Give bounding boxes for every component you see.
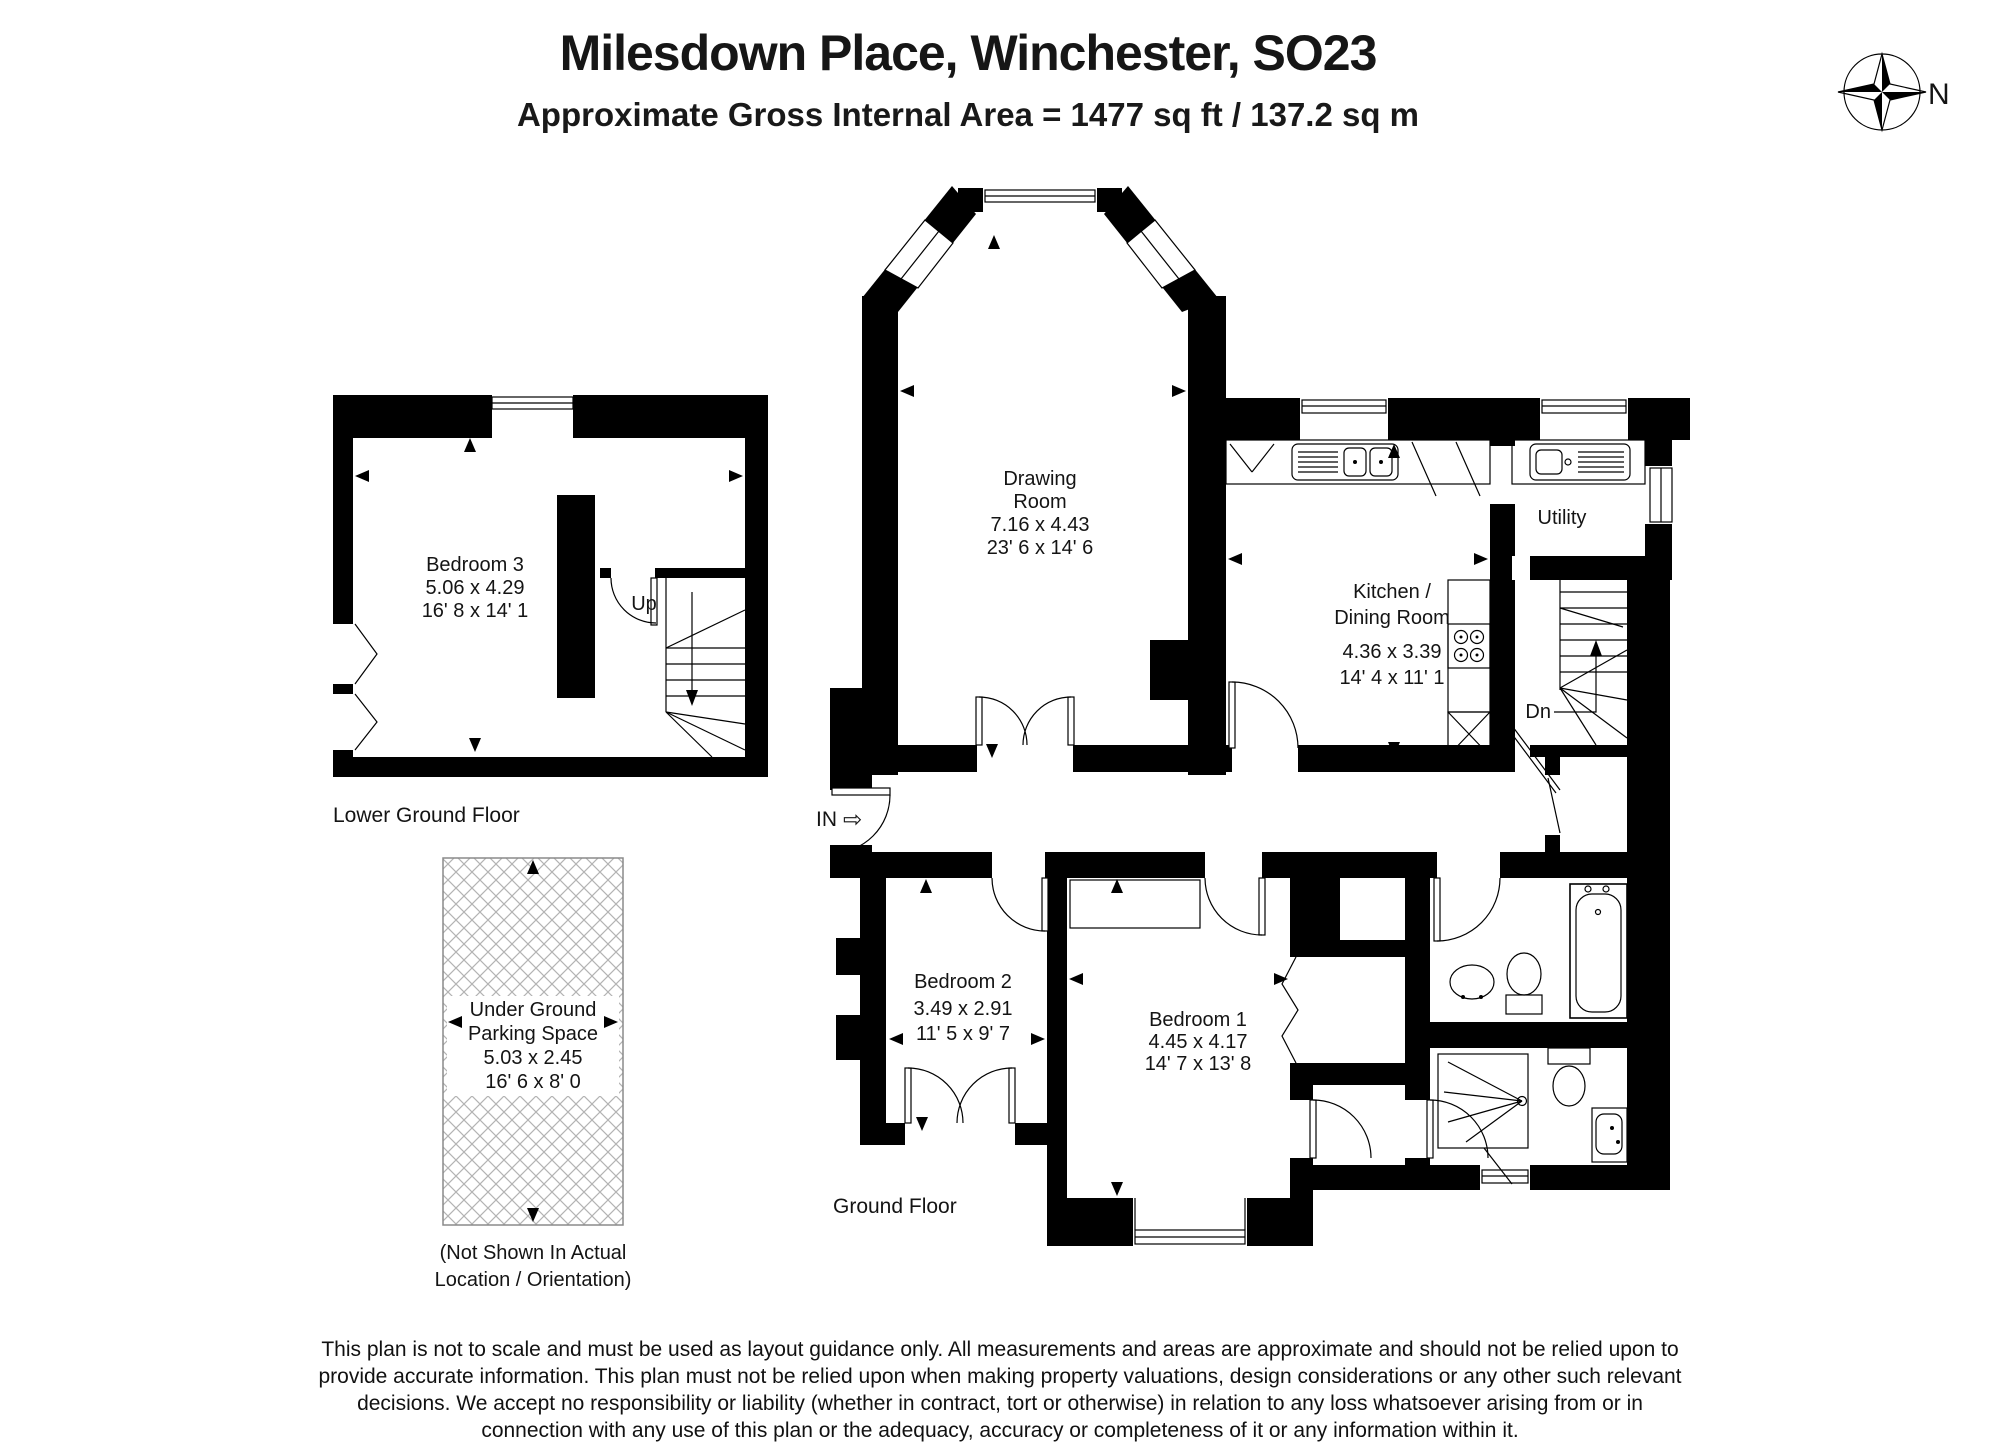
- parking-dim-metric: 5.03 x 2.45: [484, 1047, 583, 1069]
- room-label: Kitchen /: [1353, 581, 1431, 603]
- stairs-up-label: Up: [631, 593, 657, 615]
- toilet-symbol-bathroom: [1506, 953, 1542, 1014]
- lower-ground-floor-label: Lower Ground Floor: [333, 804, 520, 827]
- stairs-down-marker: Dn: [1525, 701, 1551, 723]
- disclaimer: This plan is not to scale and must be us…: [0, 1336, 2000, 1444]
- lower-ground-floor-plan: Bedroom 3 5.06 x 4.29 16' 8 x 14' 1 Up L…: [333, 395, 768, 827]
- room-dim-metric: 5.06 x 4.29: [426, 577, 525, 599]
- page-title: Milesdown Place, Winchester, SO23: [0, 24, 1936, 82]
- wardrobe-bifold-door: [1282, 957, 1298, 1063]
- room-drawing-room: Drawing Room 7.16 x 4.43 23' 6 x 14' 6: [987, 468, 1094, 559]
- disclaimer-line-1: This plan is not to scale and must be us…: [0, 1336, 2000, 1363]
- floorplan-drawing: Bedroom 3 5.06 x 4.29 16' 8 x 14' 1 Up L…: [0, 0, 2000, 1445]
- parking-note-1: (Not Shown In Actual: [440, 1242, 627, 1264]
- utility-fixtures: [1512, 440, 1645, 484]
- room-utility-label: Utility: [1538, 507, 1587, 529]
- lower-ground-walls: [333, 395, 768, 777]
- room-dim-imperial: 16' 8 x 14' 1: [422, 600, 529, 622]
- room-dim-imperial: 14' 7 x 13' 8: [1145, 1053, 1252, 1075]
- room-dim-imperial: 11' 5 x 9' 7: [916, 1023, 1010, 1045]
- room-bedroom3: Bedroom 3 5.06 x 4.29 16' 8 x 14' 1: [422, 554, 529, 622]
- hob-symbol: [1448, 624, 1490, 668]
- ground-floor-windows: [885, 190, 1672, 1244]
- page-subtitle: Approximate Gross Internal Area = 1477 s…: [0, 96, 1936, 134]
- floorplan-page: Bedroom 3 5.06 x 4.29 16' 8 x 14' 1 Up L…: [0, 0, 2000, 1445]
- lower-ground-window: [492, 397, 573, 409]
- room-bedroom2: Bedroom 2 3.49 x 2.91 11' 5 x 9' 7: [914, 971, 1013, 1045]
- parking-label-1: Under Ground: [470, 999, 597, 1021]
- measurement-arrow-icons-lg: [355, 438, 743, 752]
- room-label: Bedroom 1: [1149, 1009, 1247, 1031]
- bathtub-symbol: [1570, 884, 1627, 1018]
- shower-symbol: [1438, 1054, 1528, 1184]
- room-dim-metric: 4.36 x 3.39: [1343, 641, 1442, 663]
- parking-dim-imperial: 16' 6 x 8' 0: [485, 1071, 580, 1093]
- closet-bifold-doors: [355, 624, 377, 750]
- room-dim-metric: 3.49 x 2.91: [914, 998, 1013, 1020]
- room-label-2: Room: [1013, 491, 1066, 513]
- room-label: Drawing: [1003, 468, 1076, 490]
- entrance-arrow-icon: ⇨: [843, 806, 862, 832]
- room-dim-imperial: 14' 4 x 11' 1: [1339, 667, 1444, 689]
- header: Milesdown Place, Winchester, SO23 Approx…: [0, 24, 1936, 134]
- room-dim-metric: 7.16 x 4.43: [991, 514, 1090, 536]
- shower-room-fixtures: [1438, 1048, 1627, 1184]
- ground-floor-label: Ground Floor: [833, 1195, 957, 1218]
- parking-note-2: Location / Orientation): [435, 1269, 632, 1291]
- stairs-down-label: Dn: [1525, 701, 1551, 723]
- entrance-label: IN: [816, 808, 837, 831]
- disclaimer-line-4: connection with any use of this plan or …: [0, 1417, 2000, 1444]
- room-label: Bedroom 2: [914, 971, 1012, 993]
- parking-space: Under Ground Parking Space 5.03 x 2.45 1…: [435, 858, 632, 1291]
- parking-label-2: Parking Space: [468, 1023, 598, 1045]
- room-dim-metric: 4.45 x 4.17: [1149, 1031, 1248, 1053]
- room-dim-imperial: 23' 6 x 14' 6: [987, 537, 1094, 559]
- room-label-2: Dining Room: [1334, 607, 1450, 629]
- utility-sink-symbol: [1530, 444, 1630, 480]
- ground-floor-stairs: [1554, 580, 1627, 745]
- ground-floor-plan: Drawing Room 7.16 x 4.43 23' 6 x 14' 6 K…: [816, 186, 1690, 1246]
- ground-floor-walls: [830, 186, 1690, 1246]
- room-bedroom1: Bedroom 1 4.45 x 4.17 14' 7 x 13' 8: [1145, 1009, 1252, 1075]
- disclaimer-line-2: provide accurate information. This plan …: [0, 1363, 2000, 1390]
- basin-symbol-shower-room: [1592, 1108, 1627, 1162]
- toilet-symbol-shower-room: [1548, 1048, 1590, 1106]
- bathroom-fixtures: [1450, 884, 1627, 1018]
- room-kitchen-dining: Kitchen / Dining Room 4.36 x 3.39 14' 4 …: [1334, 581, 1450, 689]
- room-label: Bedroom 3: [426, 554, 524, 576]
- kitchen-sink-symbol: [1292, 444, 1398, 480]
- disclaimer-line-3: decisions. We accept no responsibility o…: [0, 1390, 2000, 1417]
- wardrobe-symbol: [1070, 880, 1200, 928]
- basin-symbol-bathroom: [1450, 965, 1494, 999]
- entrance-marker: IN ⇨: [816, 806, 862, 832]
